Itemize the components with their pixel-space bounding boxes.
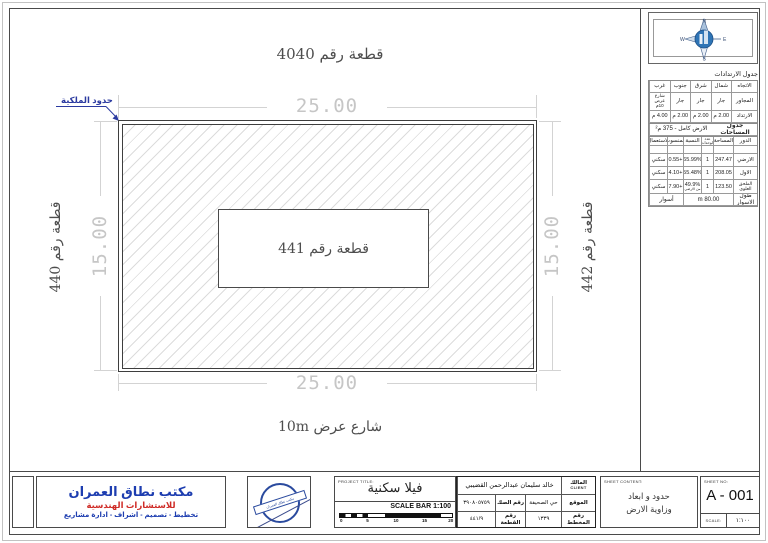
location-label: الموقع: [561, 495, 595, 512]
scale-value: ١:١٠٠: [727, 514, 759, 527]
company-services: تخطيط - تصميم - اشراف - ادارة مشاريع: [64, 511, 198, 520]
empty-cell: [12, 476, 34, 528]
company-block: مكتب نطاق العمران للاستشارات الهندسية تخ…: [36, 476, 226, 528]
deed-label: رقم الصك: [495, 495, 525, 512]
adjacent-plot-right-label: قطعة رقم 442: [580, 197, 596, 297]
scalebar-label: SCALE BAR 1:100: [390, 503, 451, 510]
compass-icon: N S E W: [654, 17, 754, 61]
adjacent-plot-top-label: قطعة رقم 4040: [230, 46, 430, 62]
sheet-content-box: SHEET CONTENT: حدود و ابعاد وزاوية الارض: [600, 476, 698, 528]
svg-text:E: E: [723, 37, 727, 43]
sheet-content-text: حدود و ابعاد وزاوية الارض: [601, 490, 697, 516]
sheet-number: A - 001: [701, 487, 759, 504]
owner-name: خالد سليمان عبدالرحمن القضيبي: [457, 477, 561, 495]
stamp-box: مكتب نطاق العمران: [247, 476, 311, 528]
areas-table: جدول المساحات الارض كامل - 375 م²: [648, 123, 758, 137]
scale-label: SCALE:: [701, 514, 727, 527]
panel-divider: [640, 9, 641, 471]
owner-label-en: CLIENT: [570, 486, 586, 490]
svg-text:W: W: [680, 37, 685, 43]
svg-text:N: N: [703, 19, 707, 25]
setbacks-table-title: جدول الارتدادات: [648, 70, 758, 78]
titleblock-divider: [9, 471, 760, 472]
sheet-no-label: SHEET NO:: [704, 479, 728, 484]
extension-line: [539, 121, 561, 122]
plot-boundary: قطعة رقم 441: [118, 120, 537, 372]
sheet-content-label: SHEET CONTENT:: [604, 479, 643, 484]
floors-table: الدور المساحة عدد الوحدات النسبة المنسوب…: [648, 136, 758, 207]
setbacks-table: الاتجاه شمال شرق جنوب غرب المجاور جار جا…: [648, 80, 758, 124]
plan-value: ١٣٣٩: [525, 512, 561, 527]
logo-box: N S E W: [648, 12, 758, 64]
company-name: مكتب نطاق العمران: [69, 485, 194, 499]
plot-center-label: قطعة رقم 441: [278, 241, 369, 257]
plot-label: رقم القطعة: [495, 512, 525, 527]
location-value: حي الصحيفة: [525, 495, 561, 512]
project-box: PROJECT TITLE: فيلا سكنية SCALE BAR 1:10…: [334, 476, 456, 528]
extension-line: [539, 370, 561, 371]
company-subtitle: للاستشارات الهندسية: [86, 500, 175, 510]
plot-value: ٤٤١/٩: [457, 512, 495, 527]
adjacent-plot-left-label: قطعة رقم 440: [48, 197, 64, 297]
plot-number-box: قطعة رقم 441: [218, 209, 429, 288]
project-box-divider: [335, 501, 455, 502]
boundary-leader-line: [56, 105, 126, 127]
client-box: المالك CLIENT خالد سليمان عبدالرحمن القض…: [456, 476, 596, 528]
project-title: فيلا سكنية: [335, 481, 455, 496]
dimension-right-value: 15.00: [543, 196, 561, 296]
svg-text:S: S: [703, 57, 707, 62]
drawing-sheet: قطعة رقم 4040 25.00 25.00 15.00 15.00 قط…: [0, 0, 768, 543]
extension-line: [94, 370, 117, 371]
deed-value: ٣٩٠٨٠٥٧٥٩: [457, 495, 495, 512]
scale-bar: 0 5 10 15 20: [339, 513, 453, 524]
sheet-number-box: SHEET NO: A - 001 SCALE: ١:١٠٠: [700, 476, 760, 528]
dimension-left-value: 15.00: [91, 196, 109, 296]
dimension-bottom-value: 25.00: [267, 373, 387, 393]
plan-label: رقم المخطط: [561, 512, 595, 527]
dimension-top-value: 25.00: [267, 96, 387, 116]
street-label: شارع عرض 10m: [250, 419, 410, 435]
